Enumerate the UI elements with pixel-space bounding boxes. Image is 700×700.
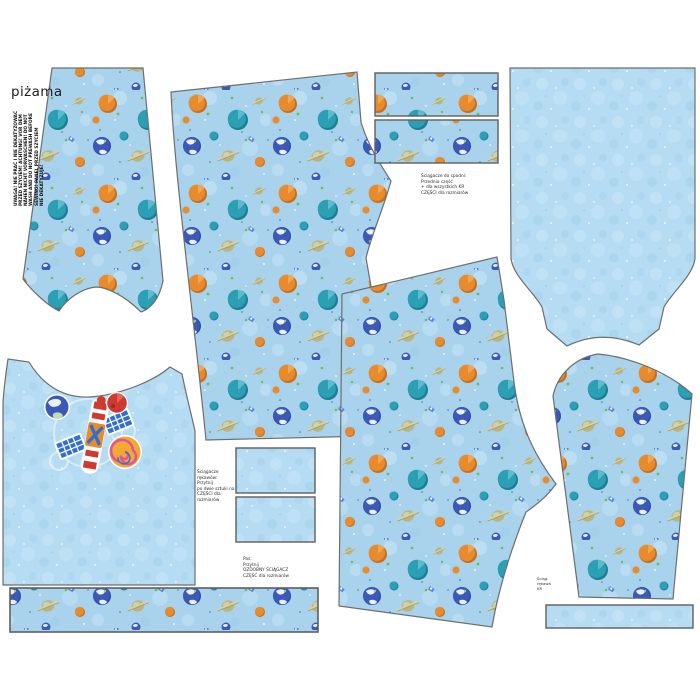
piece-hem-band <box>10 588 318 632</box>
note-line: CZĘŚĆ dla rozmiarów <box>243 574 295 580</box>
spiral-planet-icon <box>108 435 142 469</box>
note-waistband: Pas: Przytnij OZDOBNY ŚCIĄGACZ CZĘŚĆ dla… <box>243 557 295 579</box>
panel-svg <box>0 0 700 700</box>
piece-pants-back <box>339 257 556 627</box>
note-sleeve-cuffs: Ściągacze rękawów: Przytnij po dwie sztu… <box>197 470 239 503</box>
piece-pocket-rect-1 <box>236 448 315 493</box>
piece-cuff-strip-2 <box>375 120 498 163</box>
fabric-panel: piżama UWAGA! NIE PRAĆ I NIE DEKATYZOWAĆ… <box>0 0 700 700</box>
earth-icon <box>44 394 70 420</box>
piece-top-back <box>510 68 695 346</box>
care-line: NIE DEKATYZUJE! <box>40 94 45 206</box>
red-planet-icon <box>106 392 128 414</box>
note-line: OZDOBNY ŚCIĄGACZ <box>243 568 295 574</box>
note-line: CZĘŚCI dla rozmiarów <box>197 492 239 503</box>
note-line: CZĘŚCI dla rozmiarów <box>421 191 483 197</box>
care-instructions: UWAGA! NIE PRAĆ I NIE DEKATYZOWAĆ PRZED … <box>14 94 45 206</box>
note-sleeve: Ściąg. rękawa KR <box>537 577 567 592</box>
piece-tank-front <box>3 359 195 585</box>
piece-sleeve-bottom-right <box>553 354 692 599</box>
piece-pocket-rect-2 <box>236 497 315 542</box>
piece-cuff-strip-plain <box>546 605 693 628</box>
note-line: Ściągacze rękawów: <box>197 470 239 481</box>
piece-cuff-strip-1 <box>375 73 498 116</box>
note-line: KR <box>537 587 567 592</box>
note-cuffs: Ściągacze do spodni: Przednia część + dl… <box>421 174 483 196</box>
